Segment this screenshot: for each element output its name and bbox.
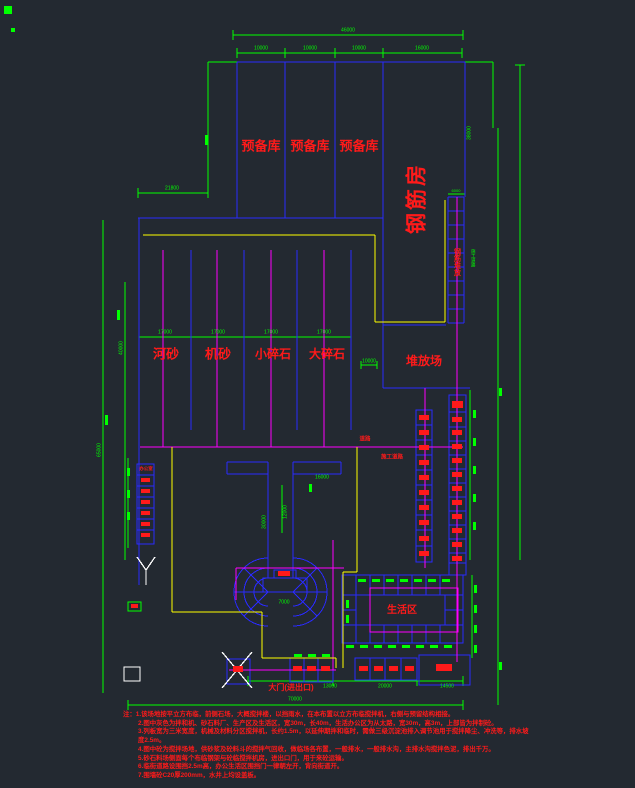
dim-top-total: 46000 bbox=[341, 29, 355, 34]
label-construction-road: 施工道路 bbox=[381, 455, 403, 461]
note-prefix: 注： bbox=[123, 711, 136, 718]
label-road-side: 施工道路 bbox=[471, 249, 476, 267]
dim-left-top: 21800 bbox=[165, 187, 179, 192]
dim-pedestal: 7000 bbox=[278, 601, 289, 606]
note-line-3: 3.列板宽为三米宽度，机械及材料分区搅拌机，长约1.5m，以延伸期拌和临时，需做… bbox=[123, 728, 531, 745]
magenta-utility-lines bbox=[140, 197, 463, 670]
corner-structure bbox=[124, 667, 140, 681]
label-rebar-stack: 钢筋堆放 bbox=[454, 248, 461, 276]
dim-top-seg-1: 10000 bbox=[254, 47, 268, 52]
dim-top-seg-2: 10000 bbox=[303, 47, 317, 52]
note-line-1: 注：1.该场地按平立方布临，前侧石场，大概搅拌楼，以挡雨水，在本布置以立方布临搅… bbox=[123, 711, 531, 720]
label-road: 道路 bbox=[359, 437, 370, 443]
label-bay-machine-sand: 机砂 bbox=[205, 348, 231, 361]
dim-mid-seg-4: 17000 bbox=[317, 331, 331, 336]
tree-y-symbol bbox=[137, 557, 155, 585]
room-label-marks bbox=[131, 401, 463, 672]
dim-stem-v2: 12000 bbox=[284, 505, 289, 519]
label-reserve-2: 预备库 bbox=[290, 140, 329, 153]
dim-stem-h: 16000 bbox=[315, 476, 329, 481]
corner-marks bbox=[4, 6, 15, 32]
label-stack-yard: 堆放场 bbox=[406, 355, 442, 367]
drawing-notes: 注：1.该场地按平立方布临，前侧石场，大概搅拌楼，以挡雨水，在本布置以立方布临搅… bbox=[123, 711, 531, 781]
label-gate: 大门(进出口) bbox=[268, 684, 313, 692]
label-reserve-3: 预备库 bbox=[339, 140, 378, 153]
dim-stem-v1: 30000 bbox=[263, 515, 268, 529]
label-bay-small-gravel: 小碎石 bbox=[255, 348, 291, 360]
dim-bottom-seg-3: 14500 bbox=[440, 685, 454, 690]
label-rebar-house: 钢筋房 bbox=[407, 162, 428, 234]
dim-mid-seg-3: 17000 bbox=[264, 331, 278, 336]
dim-mid-seg-2: 17000 bbox=[211, 331, 225, 336]
note-line-6: 6.临街道路设围挡2.5m高，办公生活区围挡门一律朝左开，背向街道开。 bbox=[123, 763, 531, 772]
dim-top-seg-3: 10000 bbox=[352, 47, 366, 52]
dim-left-height: 65000 bbox=[98, 443, 103, 457]
label-living-area: 生活区 bbox=[387, 606, 417, 616]
dim-bottom-seg-1: 13000 bbox=[323, 685, 337, 690]
site-plan-drawing bbox=[0, 0, 635, 788]
dim-bottom-seg-2: 20000 bbox=[378, 685, 392, 690]
dim-ladder-cap: 6000 bbox=[452, 189, 461, 193]
note-line-4: 4.图中砼为搅拌场地，供砂浆及砼料斗的搅拌气回收，做临场各布置，一般排水，一般排… bbox=[123, 746, 531, 755]
label-office: 办公室 bbox=[139, 467, 153, 472]
yellow-utility-lines bbox=[143, 200, 445, 668]
dim-right-upper: 38000 bbox=[468, 126, 473, 140]
dim-yard: 10000 bbox=[362, 360, 376, 365]
label-bay-river-sand: 河砂 bbox=[153, 348, 179, 361]
green-boundary-lines bbox=[103, 62, 525, 705]
cad-canvas[interactable]: 预备库 预备库 预备库 钢筋房 河砂 机砂 小碎石 大碎石 堆放场 钢筋堆放 办… bbox=[0, 0, 635, 788]
dim-top-seg-4: 16000 bbox=[415, 47, 429, 52]
note-line-5: 5.砂石料场侧面每个布临钢架与砼临搅拌机房，进出口门，用于来砼运输。 bbox=[123, 755, 531, 764]
dim-left-mid: 40000 bbox=[120, 341, 125, 355]
dim-bottom-total: 70000 bbox=[288, 698, 302, 703]
label-bay-large-gravel: 大碎石 bbox=[309, 348, 345, 360]
note-line-7: 7.围墙砼C20厚200mm，水井上均设盖板。 bbox=[123, 772, 531, 781]
dim-mid-seg-1: 17000 bbox=[158, 331, 172, 336]
dimension-tick-marks bbox=[105, 135, 502, 670]
label-reserve-1: 预备库 bbox=[241, 140, 280, 153]
